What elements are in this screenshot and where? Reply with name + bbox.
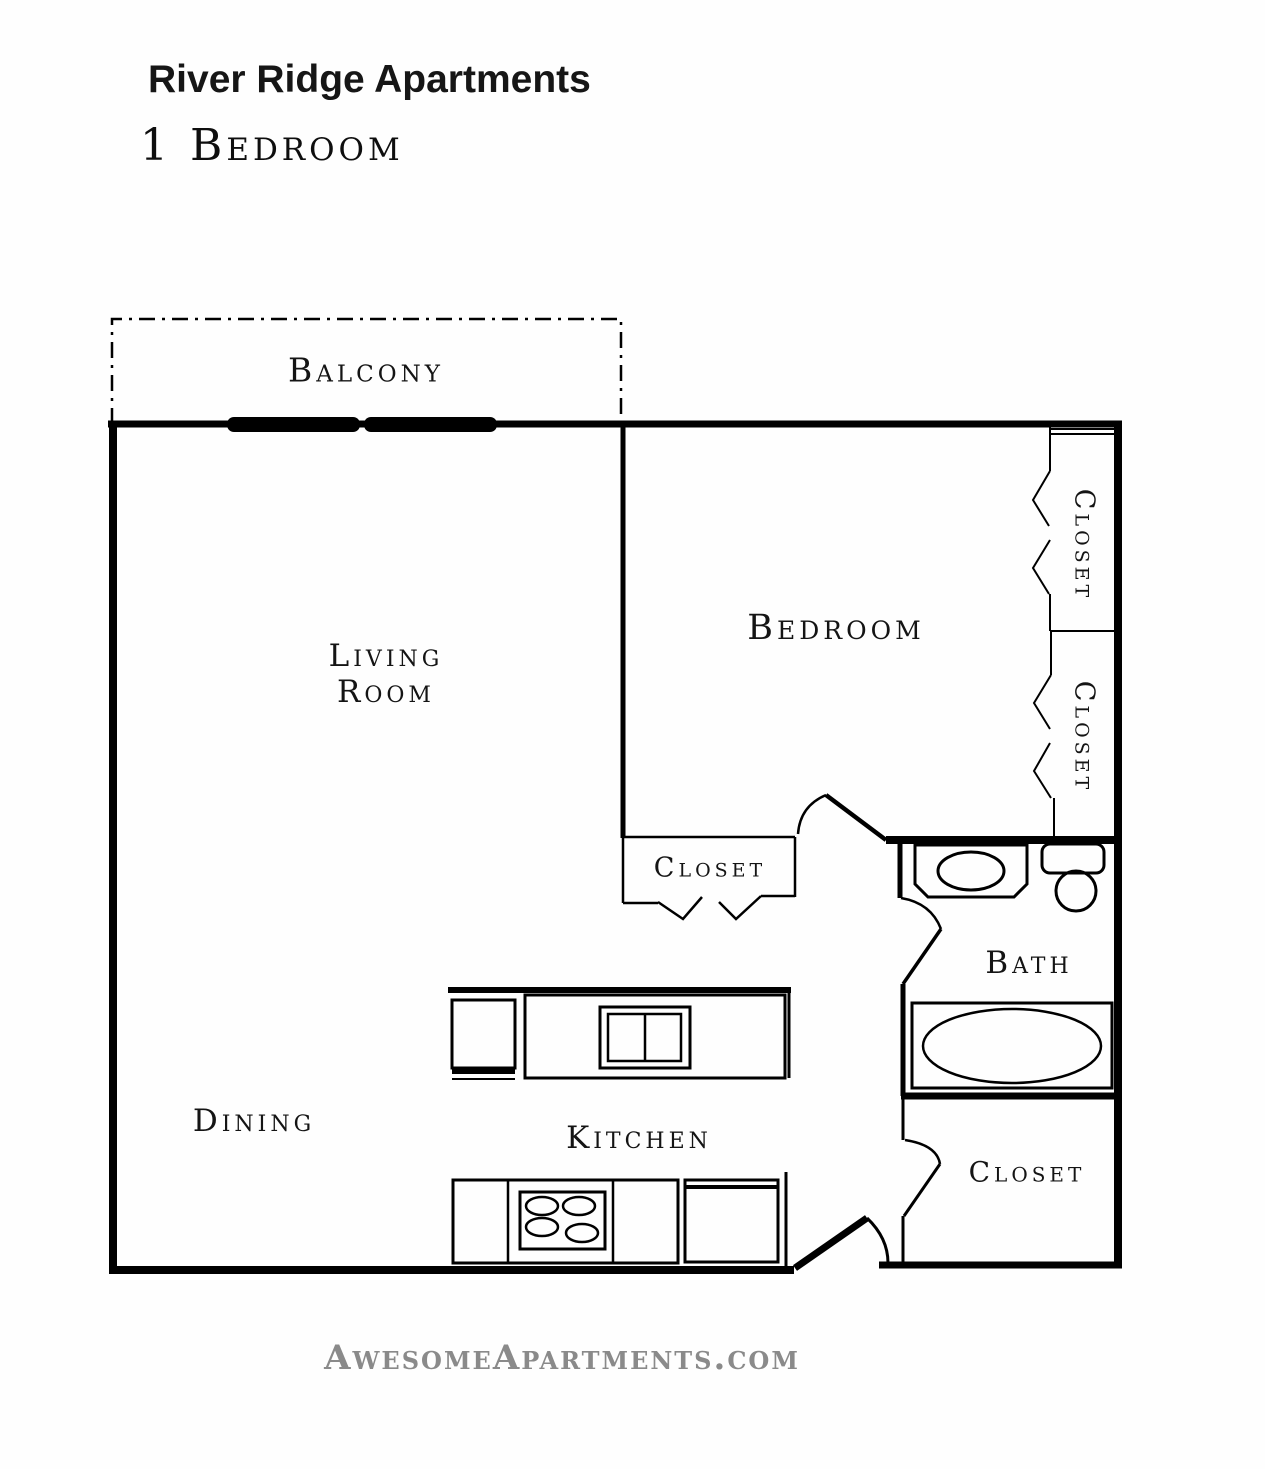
closet-top-right-label: Closet bbox=[1069, 489, 1100, 601]
entry-closet-structure bbox=[903, 1096, 940, 1262]
bath-label: Bath bbox=[985, 945, 1072, 981]
living-room-label: Living Room bbox=[329, 638, 444, 710]
bath-door-leaf bbox=[903, 929, 941, 984]
stove-icon bbox=[520, 1192, 605, 1249]
website-footer: AwesomeApartments.com bbox=[324, 1338, 800, 1378]
entry-door-icon bbox=[795, 1218, 888, 1268]
kitchen-lower-counter bbox=[453, 1172, 786, 1266]
entry-closet-label: Closet bbox=[969, 1156, 1086, 1189]
bifold-door-icon bbox=[1034, 675, 1051, 729]
bath-door-arc bbox=[901, 898, 941, 929]
living-room-label-line2: Room bbox=[337, 674, 435, 710]
bifold-door-icon bbox=[1033, 471, 1050, 526]
kitchen-sink-icon bbox=[600, 1007, 690, 1068]
bedroom-closet-label: Closet bbox=[654, 853, 766, 884]
bath-structure bbox=[900, 843, 941, 1096]
bedroom-label: Bedroom bbox=[747, 608, 924, 648]
kitchen-label: Kitchen bbox=[566, 1120, 712, 1156]
kitchen-upper-counter bbox=[448, 990, 791, 1079]
closet-bottom-right-structure bbox=[1034, 631, 1054, 838]
bifold-door-icon bbox=[1034, 743, 1051, 798]
closet-door-leaf bbox=[904, 1164, 940, 1216]
fridge-icon bbox=[685, 1180, 778, 1262]
bifold-door-icon bbox=[719, 896, 761, 919]
toilet-icon bbox=[1042, 844, 1104, 911]
bathtub-icon bbox=[912, 1003, 1112, 1088]
floor-plan-page: River Ridge Apartments 1 Bedroom bbox=[0, 0, 1265, 1469]
closet-door-arc bbox=[905, 1140, 940, 1164]
living-room-label-line1: Living bbox=[329, 638, 444, 674]
dining-label: Dining bbox=[193, 1103, 315, 1139]
bedroom-door-icon bbox=[798, 795, 886, 840]
closet-bottom-right-label: Closet bbox=[1069, 681, 1100, 793]
dishwasher-icon bbox=[452, 1000, 515, 1068]
bifold-door-icon bbox=[658, 897, 702, 919]
bathroom-sink-icon bbox=[915, 845, 1027, 897]
bifold-door-icon bbox=[1033, 540, 1050, 594]
balcony-label: Balcony bbox=[288, 351, 444, 390]
